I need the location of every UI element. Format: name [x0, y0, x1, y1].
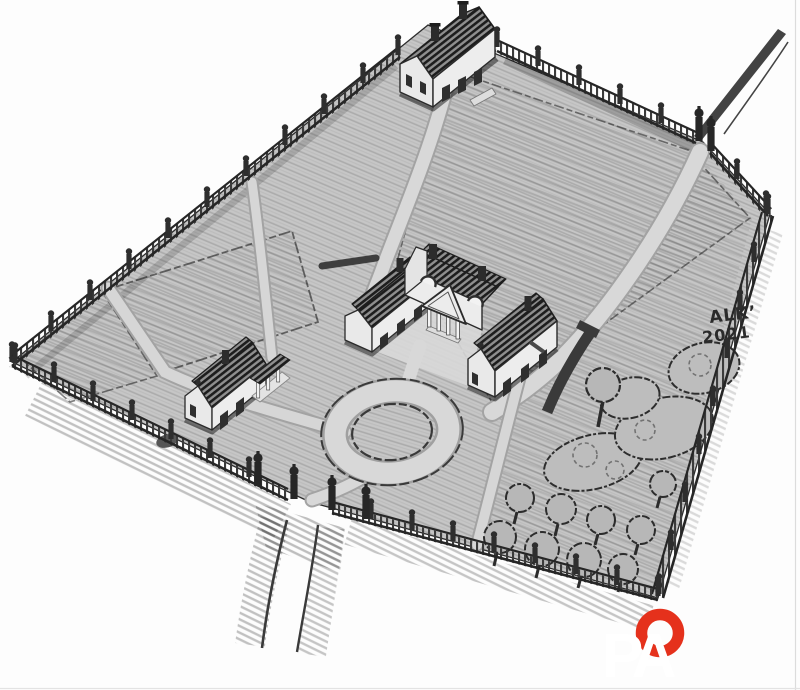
cottage-chimney	[222, 350, 229, 364]
gatehouse-chimney-cap	[430, 23, 441, 27]
gatehouse-chimney	[431, 25, 439, 41]
gatehouse-chimney	[459, 3, 467, 19]
central-chimney	[429, 244, 437, 259]
estate-sketch: ALK’ 2021 PA	[0, 0, 800, 690]
artist-signature: ALK’ 2021	[701, 302, 758, 347]
left-wing-chimney	[397, 258, 404, 272]
cottage-finial	[195, 379, 200, 384]
sketch-canvas: ALK’ 2021 PA	[0, 0, 800, 690]
central-chimney	[478, 266, 486, 281]
right-wing-finial	[478, 342, 483, 347]
right-wing-chimney	[525, 296, 532, 311]
tree-canopy	[586, 368, 620, 402]
pa-letters: PA	[602, 622, 676, 690]
pa-logo: PA	[602, 615, 679, 690]
gatehouse-chimney-cap	[458, 1, 469, 5]
